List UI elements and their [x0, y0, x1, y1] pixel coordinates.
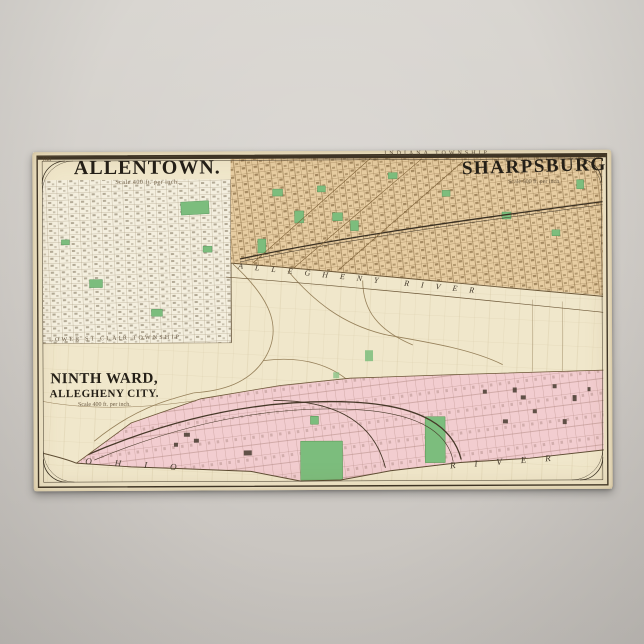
product-backdrop: 100 ALLENTOWN. Scale 400 ft. per inch. I…	[0, 0, 644, 644]
sharpsburg-scale-note: Scale 500 ft. per inch.	[484, 179, 584, 185]
map-poster: 100 ALLENTOWN. Scale 400 ft. per inch. I…	[32, 150, 612, 492]
sharpsburg-title: SHARPSBURG	[460, 154, 609, 181]
allentown-scale-note: Scale 400 ft. per inch.	[90, 180, 204, 186]
ninth-ward-title: NINTH WARD,	[37, 371, 171, 389]
page-number: 100	[42, 157, 51, 163]
allentown-title: ALLENTOWN.	[72, 156, 222, 180]
indiana-township-label: INDIANA TOWNSHIP	[384, 150, 490, 156]
allentown-inset-map	[42, 179, 231, 343]
map-artwork	[32, 150, 612, 492]
ninth-ward-subtitle: ALLEGHENY CITY.	[37, 388, 171, 401]
ninth-ward-scale-note: Scale 400 ft. per inch.	[37, 402, 171, 409]
